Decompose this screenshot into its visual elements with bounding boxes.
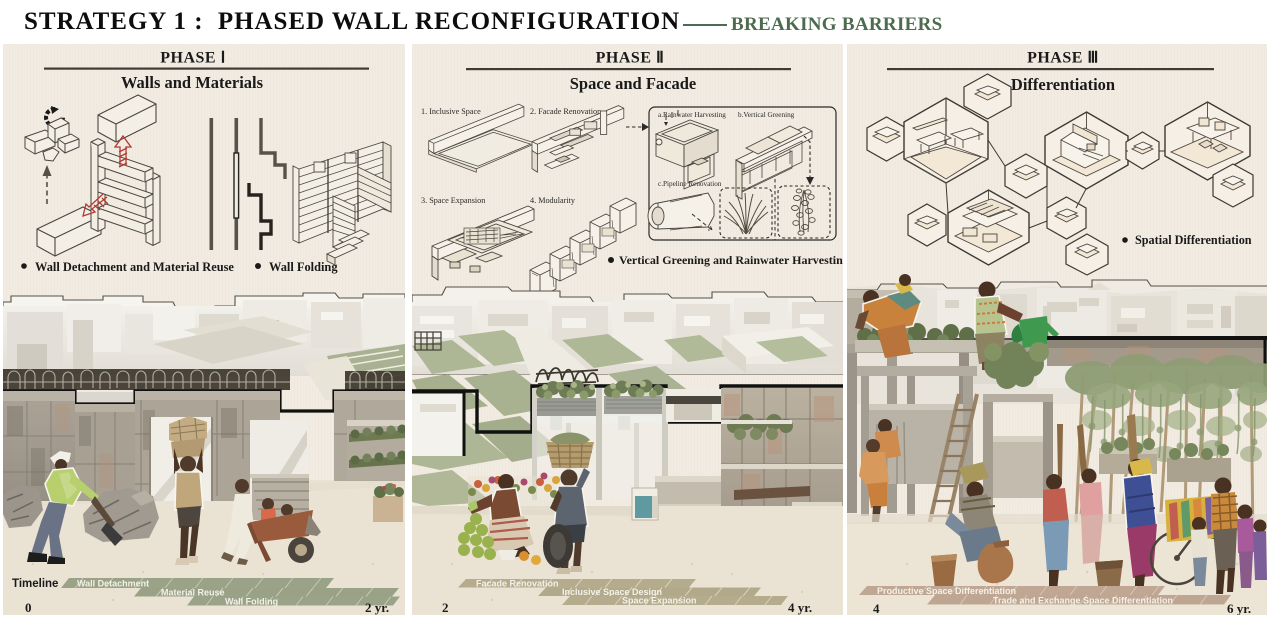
- svg-text:b.Vertical Greening: b.Vertical Greening: [738, 111, 795, 119]
- svg-text:Differentiation: Differentiation: [1011, 75, 1115, 94]
- svg-text:Vertical Greening and Rainwate: Vertical Greening and Rainwater Harvesti…: [619, 253, 843, 267]
- svg-text:Wall Detachment and Material R: Wall Detachment and Material Reuse: [35, 260, 234, 274]
- svg-text:4: 4: [873, 601, 880, 615]
- svg-text:c.Pipeline Renovation: c.Pipeline Renovation: [658, 180, 722, 188]
- svg-text:Productive Space Differentiati: Productive Space Differentiation: [877, 586, 1016, 596]
- svg-text:3. Space Expansion: 3. Space Expansion: [421, 196, 485, 205]
- svg-text:2: 2: [442, 600, 449, 615]
- svg-text:Wall Folding: Wall Folding: [225, 597, 278, 607]
- svg-text:2. Facade Renovation: 2. Facade Renovation: [530, 107, 601, 116]
- svg-text:Wall Detachment: Wall Detachment: [77, 579, 149, 589]
- svg-text:Space Expansion: Space Expansion: [622, 596, 697, 606]
- svg-text:Walls and Materials: Walls and Materials: [121, 73, 264, 92]
- svg-text:PHASE Ⅱ: PHASE Ⅱ: [596, 50, 665, 67]
- svg-text:Trade and Exchange Space Diffe: Trade and Exchange Space Differentiation: [993, 596, 1173, 606]
- svg-text:Wall Folding: Wall Folding: [269, 260, 338, 274]
- svg-text:1. Inclusive Space: 1. Inclusive Space: [421, 107, 481, 116]
- svg-text:Facade Renovation: Facade Renovation: [476, 579, 559, 589]
- svg-text:4 yr.: 4 yr.: [788, 600, 812, 615]
- svg-text:2 yr.: 2 yr.: [365, 600, 389, 615]
- svg-text:Material Reuse: Material Reuse: [161, 588, 225, 598]
- svg-text:PHASE Ⅲ: PHASE Ⅲ: [1027, 50, 1099, 67]
- svg-text:Timeline: Timeline: [12, 578, 58, 590]
- svg-text:4. Modularity: 4. Modularity: [530, 196, 576, 205]
- svg-text:0: 0: [25, 600, 32, 615]
- svg-text:6 yr.: 6 yr.: [1227, 601, 1251, 615]
- svg-text:Spatial Differentiation: Spatial Differentiation: [1135, 233, 1252, 247]
- svg-text:Space and Facade: Space and Facade: [570, 74, 697, 93]
- svg-text:a.Rainwater Harvesting: a.Rainwater Harvesting: [658, 111, 726, 119]
- svg-text:PHASE Ⅰ: PHASE Ⅰ: [160, 50, 226, 67]
